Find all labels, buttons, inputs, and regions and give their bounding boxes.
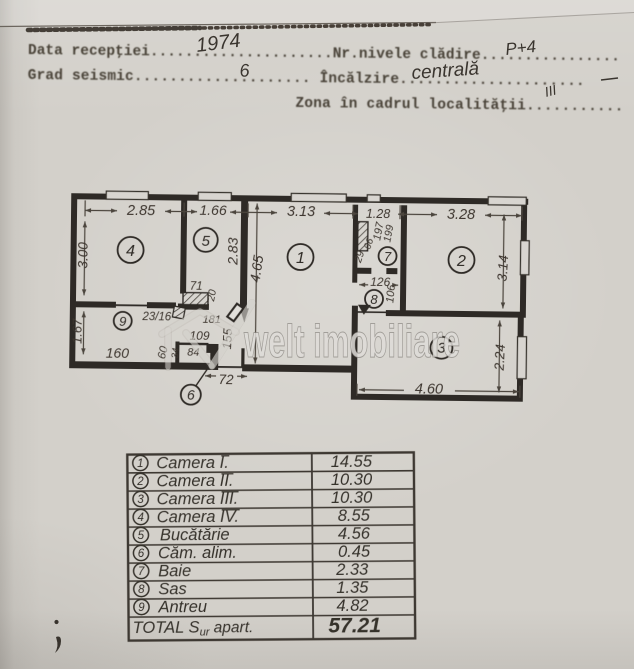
svg-text:7: 7: [138, 566, 145, 578]
svg-text:71: 71: [190, 281, 203, 293]
svg-text:3: 3: [137, 494, 144, 506]
svg-text:0.45: 0.45: [338, 543, 371, 561]
svg-text:3.00: 3.00: [75, 242, 90, 269]
svg-text:3.14: 3.14: [495, 255, 512, 282]
svg-text:4.60: 4.60: [415, 381, 443, 397]
svg-text:1: 1: [137, 458, 144, 470]
svg-text:1.67: 1.67: [69, 318, 84, 344]
svg-text:6: 6: [138, 548, 145, 560]
svg-text:6: 6: [187, 387, 195, 403]
svg-text:8: 8: [370, 292, 378, 307]
svg-text:23/16: 23/16: [141, 311, 172, 323]
svg-text:Grad seismic..................: Grad seismic.................... Încălzi…: [28, 66, 585, 90]
svg-text:2: 2: [136, 476, 144, 488]
svg-text:Camera IV.: Camera IV.: [157, 508, 239, 527]
svg-text:2.33: 2.33: [335, 561, 369, 579]
svg-text:2.83: 2.83: [224, 237, 240, 266]
svg-text:2.24: 2.24: [492, 344, 508, 372]
svg-text:7: 7: [384, 249, 392, 264]
svg-text:TOTAL Sur apart.: TOTAL Sur apart.: [133, 618, 254, 639]
svg-text:10.30: 10.30: [331, 471, 373, 489]
svg-text:10.30: 10.30: [331, 489, 373, 507]
svg-text:5: 5: [201, 233, 210, 250]
svg-text:8.55: 8.55: [338, 507, 371, 525]
svg-text:8: 8: [138, 584, 145, 596]
svg-text:2: 2: [456, 253, 466, 270]
svg-text:Zona în cadrul localităţii....: Zona în cadrul localităţii...........: [295, 96, 623, 116]
svg-text:3.13: 3.13: [287, 204, 315, 220]
svg-text:Sas: Sas: [158, 580, 187, 598]
svg-text:Bucătărie: Bucătărie: [160, 526, 230, 545]
svg-text:5: 5: [138, 530, 145, 542]
svg-text:72: 72: [218, 372, 234, 387]
svg-text:9: 9: [119, 314, 126, 329]
svg-text:57.21: 57.21: [328, 614, 381, 637]
svg-text:1.35: 1.35: [336, 579, 369, 597]
svg-text:Camera I.: Camera I.: [156, 454, 229, 473]
svg-text:4: 4: [138, 512, 145, 524]
svg-text:Camera III.: Camera III.: [157, 490, 239, 509]
svg-text:160: 160: [106, 345, 130, 361]
svg-text:P+4: P+4: [504, 37, 537, 59]
svg-text:9: 9: [138, 602, 145, 614]
svg-text:Antreu: Antreu: [157, 598, 207, 616]
svg-text:1.28: 1.28: [366, 207, 391, 221]
svg-text:4.65: 4.65: [246, 254, 266, 284]
svg-text:20: 20: [205, 288, 219, 303]
svg-text:199: 199: [381, 224, 396, 244]
svg-text:4.56: 4.56: [338, 525, 371, 543]
svg-text:2.85: 2.85: [126, 203, 156, 219]
svg-text:6: 6: [239, 60, 252, 81]
svg-text:4: 4: [126, 243, 135, 260]
svg-text:Baie: Baie: [158, 562, 191, 580]
svg-text:welt imobiliare: welt imobiliare: [243, 315, 460, 367]
svg-text:4.82: 4.82: [336, 597, 368, 615]
svg-text:Căm. alim.: Căm. alim.: [158, 544, 237, 563]
svg-text:106: 106: [384, 283, 398, 303]
svg-text:Camera II.: Camera II.: [156, 472, 233, 491]
svg-text:1.66: 1.66: [199, 202, 227, 218]
svg-text:1: 1: [296, 250, 305, 267]
svg-text:3.28: 3.28: [447, 207, 475, 223]
svg-text:14.55: 14.55: [331, 453, 373, 471]
